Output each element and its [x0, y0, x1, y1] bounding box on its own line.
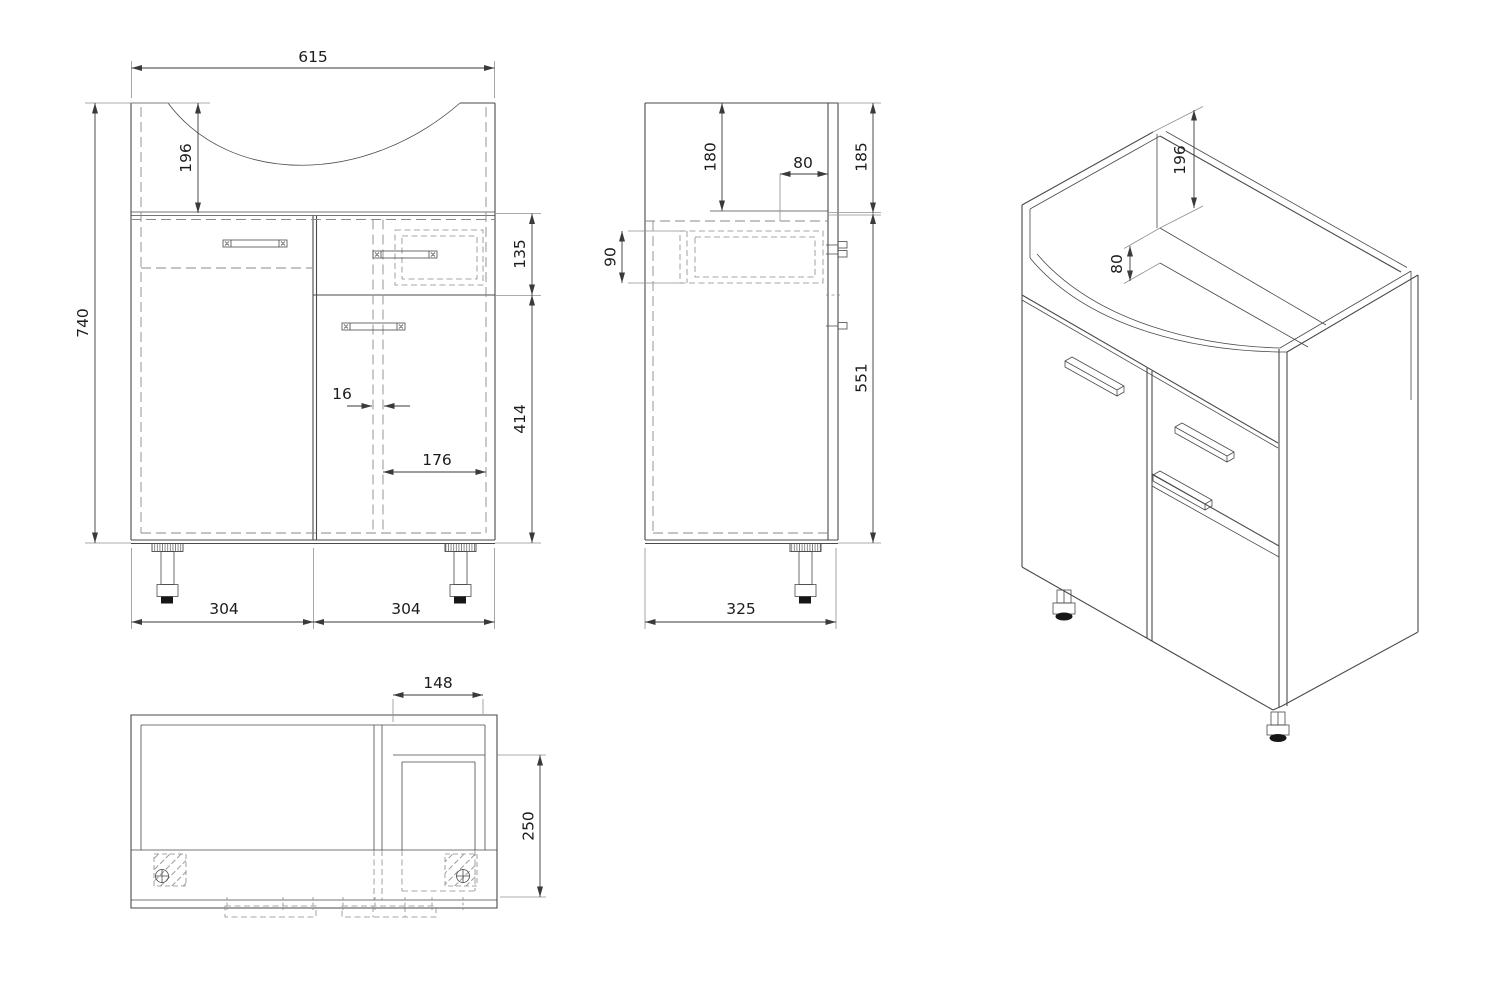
top-board-lines — [131, 212, 495, 216]
iso-right-foot — [1267, 712, 1289, 742]
dim-front-partition: 16 — [332, 385, 352, 403]
side-hidden-lines — [645, 221, 841, 533]
dim-iso-rail-height: 80 — [1108, 254, 1126, 274]
dim-front-basin-recess: 196 — [177, 143, 195, 173]
iso-left-door-handle — [1065, 357, 1124, 396]
dim-front-compartment: 176 — [422, 451, 452, 469]
drawer-box-hidden-inner — [402, 236, 477, 279]
front-view: 615 196 740 135 414 16 176 304 304 — [74, 48, 541, 629]
drawing-canvas: 615 196 740 135 414 16 176 304 304 — [0, 0, 1500, 982]
dim-front-overall-width: 615 — [298, 48, 328, 66]
bottom-board-lines — [131, 540, 495, 544]
plan-drawer-box — [393, 755, 485, 850]
side-back-fittings — [826, 242, 847, 330]
dim-side-top-depth: 180 — [702, 142, 720, 172]
back-panel-top-front — [1160, 136, 1401, 272]
iso-left-foot — [1053, 590, 1075, 621]
left-door-handle — [223, 240, 287, 247]
dim-plan-bay-width: 148 — [423, 674, 453, 692]
back-panel-top-back — [1166, 132, 1407, 268]
iso-handles — [1065, 357, 1234, 510]
side-view: 180 80 185 90 551 325 — [602, 103, 882, 629]
dim-side-body-height: 551 — [853, 363, 871, 393]
side-dimensions: 180 80 185 90 551 325 — [602, 103, 882, 629]
iso-drawer-handle — [1175, 423, 1234, 462]
back-rail-bottom-edge — [1160, 263, 1308, 347]
carcass-top-front-edge — [1022, 295, 1278, 443]
dim-front-right-module: 304 — [391, 600, 421, 618]
dim-side-overall-depth: 325 — [726, 600, 756, 618]
dim-front-drawer-height: 135 — [511, 239, 529, 269]
plan-partition — [374, 725, 382, 850]
dim-side-top-height: 185 — [853, 142, 871, 172]
iso-basin-curve-outer — [1030, 258, 1287, 352]
dim-side-drawer-box: 90 — [602, 247, 620, 267]
dim-front-door-height: 414 — [511, 404, 529, 434]
iso-feet — [1053, 590, 1289, 742]
drawing-sheet: 615 196 740 135 414 16 176 304 304 — [0, 0, 1500, 982]
drawer-box-hidden-outer — [395, 230, 483, 285]
side-drawer-box-inner — [695, 237, 815, 277]
side-drawer-box-outer — [680, 231, 823, 283]
plan-view: 148 250 — [131, 674, 546, 917]
dim-front-left-module: 304 — [209, 600, 239, 618]
side-foot — [790, 544, 821, 604]
center-divider — [313, 216, 317, 541]
plan-foot-plates — [154, 854, 477, 886]
basin-curve — [168, 103, 460, 165]
dim-side-back-rail: 80 — [793, 154, 813, 172]
plan-right-foot-plate — [445, 854, 477, 886]
iso-right-door-handle — [1153, 471, 1212, 510]
side-bottom-lines — [645, 540, 838, 544]
iso-door-divider — [1147, 368, 1152, 641]
right-door-handle — [342, 323, 405, 330]
iso-outline — [1022, 132, 1418, 711]
isometric-view: 196 80 — [1022, 107, 1418, 743]
dim-iso-panel-rise: 196 — [1171, 145, 1189, 175]
iso-dimensions: 196 80 — [1108, 107, 1203, 284]
front-right-foot — [445, 544, 476, 604]
front-dimensions: 615 196 740 135 414 16 176 304 304 — [74, 48, 541, 629]
plan-hidden-lines — [225, 850, 475, 917]
plan-left-foot-plate — [154, 854, 186, 886]
front-feet — [152, 544, 476, 604]
front-left-foot — [152, 544, 183, 604]
iso-basin-curve-inner — [1037, 254, 1280, 348]
dim-front-overall-height: 740 — [74, 308, 92, 338]
dim-plan-bay-depth: 250 — [520, 811, 538, 841]
